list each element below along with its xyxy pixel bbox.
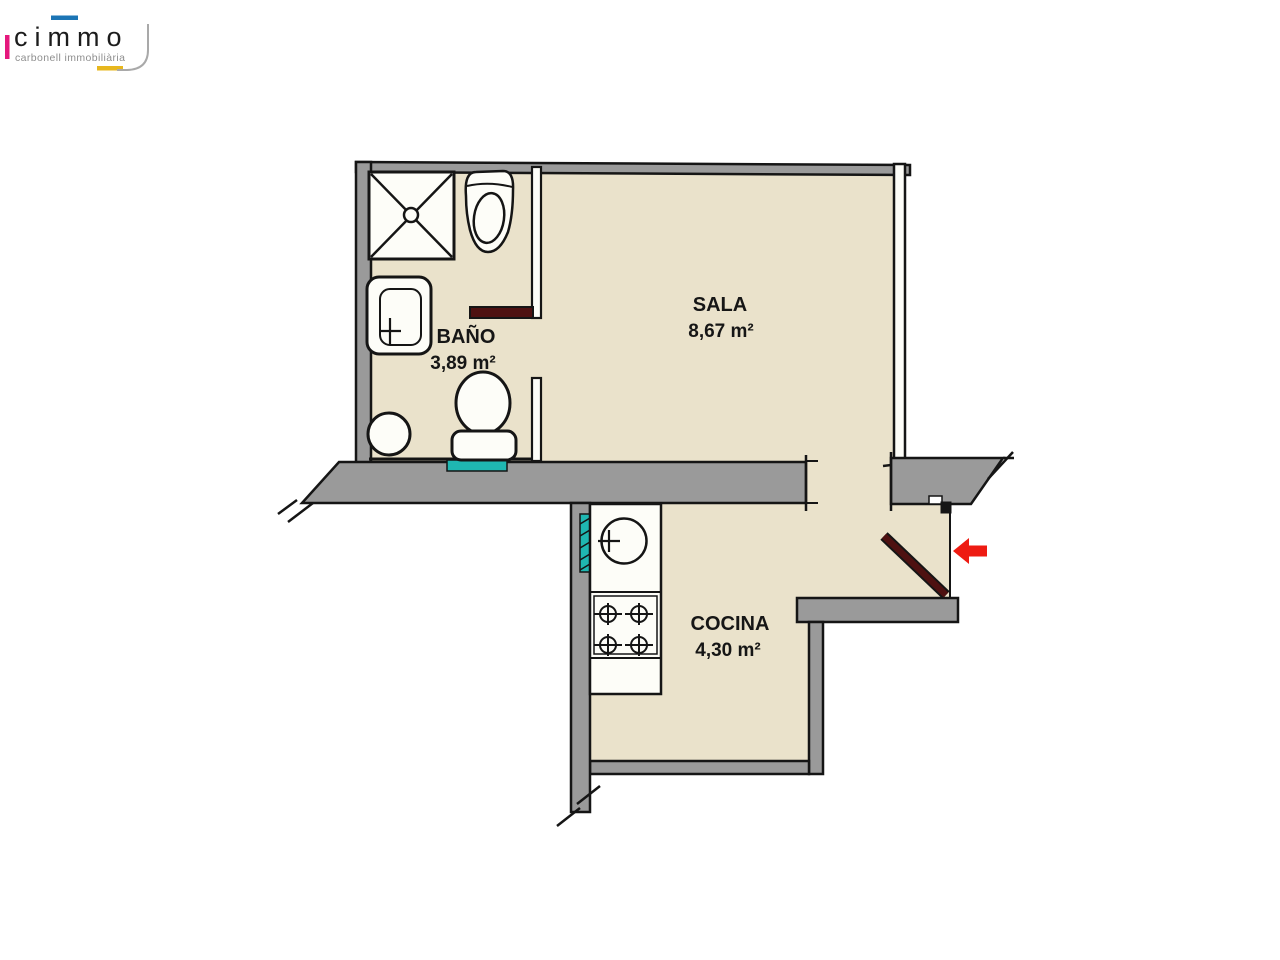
room-name-bano: BAÑO bbox=[437, 325, 496, 348]
wall-sala-right bbox=[894, 164, 905, 463]
room-name-sala: SALA bbox=[693, 294, 747, 316]
room-area-cocina: 4,30 m² bbox=[695, 640, 760, 661]
wall-kitchen-bottom bbox=[590, 761, 809, 774]
wall-divider-lower bbox=[532, 378, 541, 461]
round-basin bbox=[368, 413, 410, 455]
logo-brand-text: cimmo bbox=[14, 22, 129, 52]
bathroom-window bbox=[447, 460, 507, 471]
wall-corridor-break-mark-1 bbox=[288, 503, 313, 522]
wall-corridor-break-mark-2 bbox=[278, 500, 297, 514]
wall-divider-upper bbox=[532, 167, 541, 318]
wall-entry-top bbox=[891, 458, 1003, 504]
logo-blue-bar bbox=[51, 16, 78, 21]
logo-pink-bar bbox=[5, 35, 10, 59]
floorplan-page: cimmo carbonell immobiliària bbox=[0, 0, 1280, 960]
kitchen-fixtures bbox=[590, 504, 661, 694]
room-area-sala: 8,67 m² bbox=[688, 321, 753, 342]
toilet-bowl bbox=[456, 372, 510, 434]
shower-drain bbox=[404, 208, 418, 222]
bathroom-door-leaf bbox=[470, 307, 533, 318]
room-area-bano: 3,89 m² bbox=[430, 353, 495, 374]
wall-corridor-band bbox=[302, 462, 806, 503]
entrance-arrow-icon bbox=[953, 538, 987, 564]
toilet-base bbox=[452, 431, 516, 460]
floorplan-canvas: cimmo carbonell immobiliària bbox=[0, 0, 1280, 960]
wall-kitchen-right bbox=[809, 622, 823, 774]
logo-tagline-text: carbonell immobiliària bbox=[15, 52, 125, 64]
room-name-cocina: COCINA bbox=[691, 613, 770, 635]
logo: cimmo carbonell immobiliària bbox=[5, 16, 148, 71]
wall-entry-bottom bbox=[797, 598, 958, 622]
wall-kitchen-left-break-mark-2 bbox=[557, 808, 580, 826]
wall-entry-notch bbox=[929, 496, 942, 504]
